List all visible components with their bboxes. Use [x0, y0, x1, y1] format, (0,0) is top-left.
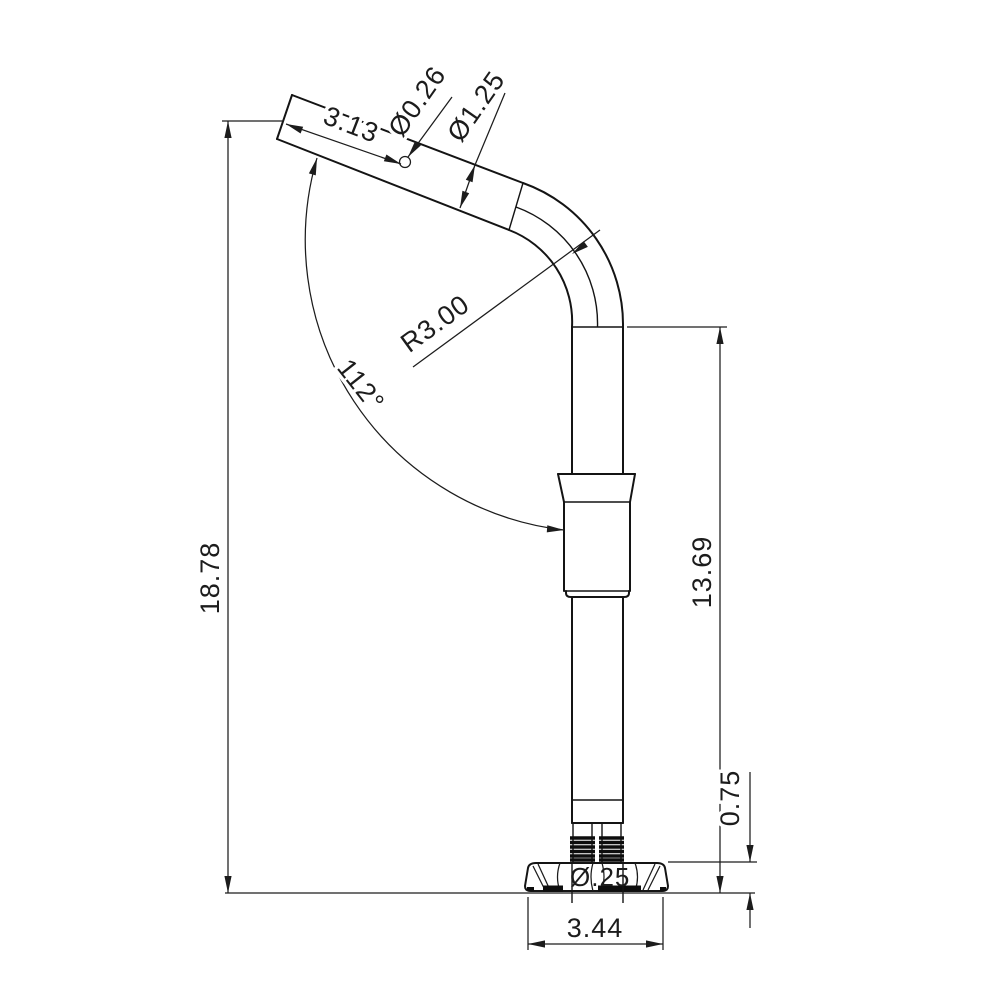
drawing-sheet: 18.78 13.69 0.75 3.44 3.13 Ø: [0, 0, 1000, 1000]
arrowhead: [466, 164, 479, 182]
dim-bend-radius-label: R3.00: [395, 289, 475, 359]
collar: [558, 474, 635, 597]
collar-left-taper: [558, 474, 564, 502]
arrowhead: [746, 845, 753, 862]
arrowhead: [547, 525, 564, 533]
dim-flange-thickness-label: 0.75: [715, 770, 745, 827]
dim-post-height: 13.69: [627, 327, 727, 893]
collar-bottom-lip: [566, 591, 629, 597]
arrowhead: [746, 893, 753, 910]
right-stud-threads: [599, 838, 624, 860]
bend-outer-arc: [523, 183, 623, 327]
dim-bend-angle-label: 112°: [331, 353, 390, 417]
arrowhead: [716, 876, 723, 893]
post-lower: [572, 597, 623, 823]
dim-post-height-label: 13.69: [687, 536, 717, 609]
tip-hole: [400, 157, 411, 168]
dim-flange-thickness: 0.75: [668, 770, 757, 928]
arrowhead: [309, 157, 321, 175]
arrowhead: [224, 876, 231, 893]
part-outline: [277, 95, 668, 903]
tube-end-face: [277, 95, 292, 139]
arrowhead: [716, 327, 723, 344]
dim-tube-diameter: Ø1.25: [441, 66, 511, 210]
left-stud-threads: [570, 838, 595, 860]
arrowhead: [285, 121, 303, 134]
collar-right-taper: [630, 474, 635, 502]
dim-hole-diameter: Ø0.26: [382, 61, 452, 160]
arrowhead: [528, 940, 545, 947]
post-upper: [572, 327, 623, 474]
dim-bend-angle: 112°: [305, 157, 564, 534]
dim-base-width: 3.44: [528, 897, 663, 950]
dim-base-width-label: 3.44: [567, 913, 624, 943]
angle-arc: [305, 158, 564, 530]
dim-tip-length-label: 3.13: [319, 100, 383, 148]
technical-drawing-canvas: 18.78 13.69 0.75 3.44 3.13 Ø: [0, 0, 1000, 1000]
threaded-studs: [570, 823, 624, 862]
bend-start-seam: [509, 183, 523, 230]
dim-overall-height: 18.78: [195, 121, 284, 893]
arrowhead: [224, 121, 231, 138]
arrowhead: [646, 940, 663, 947]
dim-thread-callout-label: Ø.25: [570, 862, 630, 892]
dim-overall-height-label: 18.78: [195, 542, 225, 615]
dim-tip-length: 3.13: [285, 100, 403, 167]
arrowhead: [457, 191, 470, 209]
tube-bottom-edge: [277, 139, 509, 230]
bend-inner-arc: [509, 230, 572, 327]
